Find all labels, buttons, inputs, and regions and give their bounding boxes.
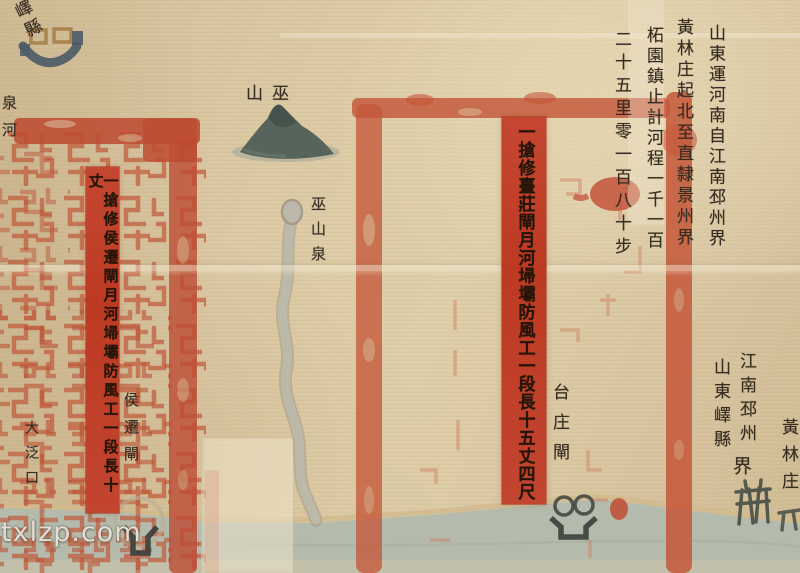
site-watermark: txlzp.com <box>1 517 142 548</box>
antique-canal-map: 嶧縣 泉河 大泛口 巫山 巫山泉 侯遷閘 台庄閘 山東運河南自江南邳州界 黃林庄… <box>0 0 800 573</box>
houqian-repair-notice: 一搶修侯遷閘月河埽壩防風工一段長十丈 <box>86 167 119 513</box>
map-art-layer <box>0 0 800 573</box>
houqian-repair-notice-text: 一搶修侯遷閘月河埽壩防風工一段長十丈 <box>88 173 118 513</box>
wushan-spring-stream <box>282 200 316 520</box>
taizhuang-repair-notice-text: 一搶修臺莊閘月河埽壩防風工一段長十五丈四尺 <box>516 123 533 501</box>
wushan-mountain-icon <box>232 105 340 162</box>
wushan-mountain-label: 巫山 <box>246 79 298 104</box>
city-wall-icon <box>20 29 83 63</box>
taizhuang-repair-notice: 一搶修臺莊閘月河埽壩防風工一段長十五丈四尺 <box>502 117 546 504</box>
